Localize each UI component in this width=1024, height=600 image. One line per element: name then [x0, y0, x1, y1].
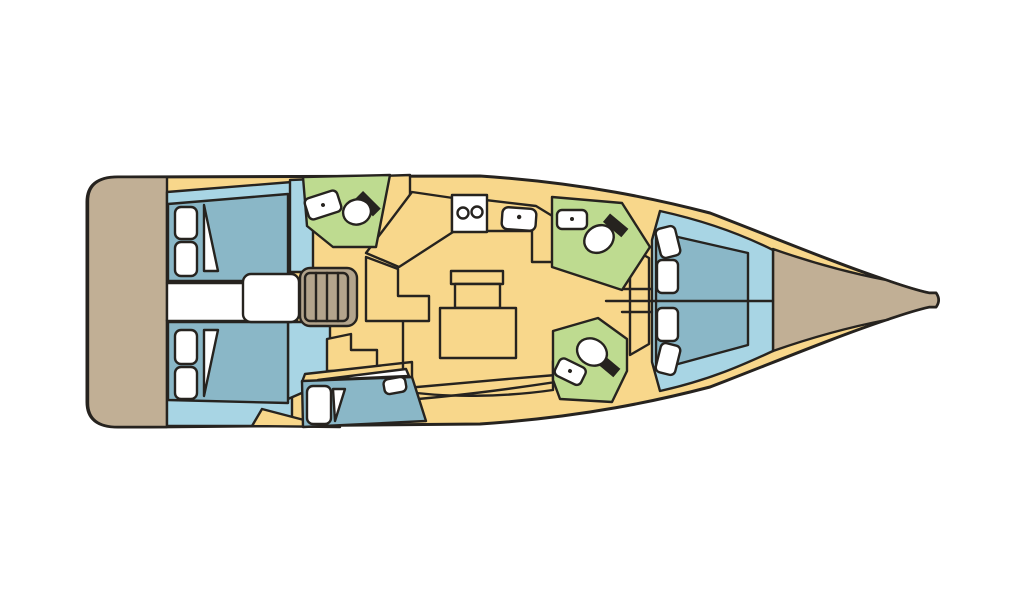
basin-left	[458, 208, 469, 219]
pillow	[175, 330, 197, 364]
pillow	[175, 207, 197, 239]
table-pedestal	[455, 284, 500, 308]
galley-sink-unit	[452, 195, 487, 232]
companionway-steps	[300, 268, 357, 326]
sink-icon	[557, 210, 587, 229]
pillow	[383, 376, 407, 395]
pillow	[175, 242, 197, 276]
basin-right	[472, 207, 483, 218]
head-forward-lower	[553, 318, 627, 402]
table-leaf-top	[451, 271, 503, 284]
pillow	[657, 308, 678, 341]
layout-canvas: Sailing yacht interior layout plan, top …	[0, 0, 1024, 600]
yacht-layout-diagram: Sailing yacht interior layout plan, top …	[0, 0, 1024, 600]
swim-platform	[88, 177, 167, 427]
pillow	[175, 367, 197, 399]
pillow	[307, 386, 331, 424]
table-main	[440, 308, 516, 358]
pillow	[657, 260, 678, 293]
galley-stove	[501, 207, 536, 231]
companionway-landing	[243, 274, 299, 322]
